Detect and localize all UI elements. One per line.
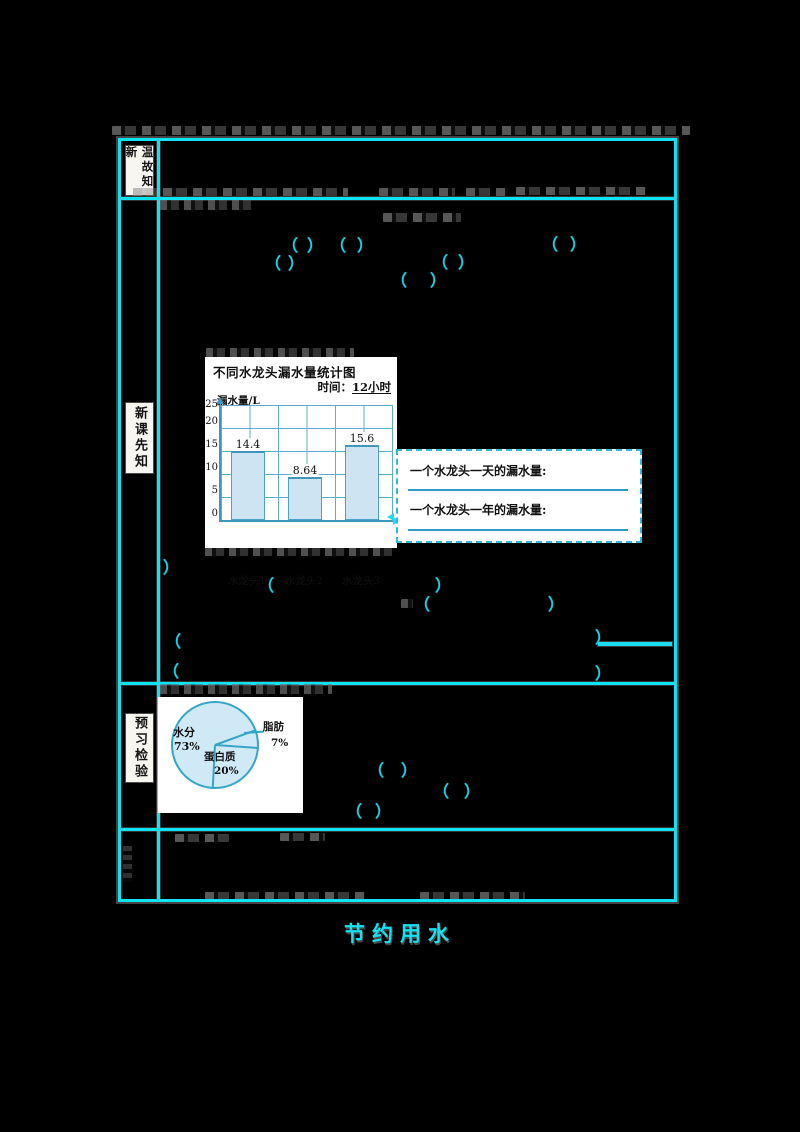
- blank-bracket-close: ）: [375, 804, 391, 820]
- worksheet-table: 温故知新 新课先知 预习检验 （ ） （ ） （ ） （ ） （ ） （ ） 不…: [118, 138, 677, 902]
- row-divider-3: [121, 828, 674, 831]
- blank-bracket-open: （: [542, 237, 558, 253]
- bar-faucet-3: 15.6: [345, 445, 379, 520]
- bar-chart-panel: 不同水龙头漏水量统计图 时间：12小时 漏水量/L 0 5 10 15 20 2…: [205, 357, 397, 548]
- redacted-text: [516, 187, 646, 195]
- blank-bracket-open: （: [414, 597, 430, 613]
- blank-bracket-close: ）: [595, 666, 611, 682]
- blank-bracket-close: ）: [458, 255, 474, 271]
- pie-pct-fat: 7%: [271, 737, 288, 749]
- bar-faucet-1: 14.4: [231, 451, 265, 520]
- blank-bracket-close: ）: [307, 238, 323, 254]
- redacted-text: [205, 892, 365, 899]
- redacted-text-row: [112, 126, 690, 135]
- blank-bracket-open: （: [258, 578, 274, 594]
- answer-blank-line: [598, 642, 672, 646]
- y-tick: 15: [205, 439, 218, 450]
- sidebar-label-preview-check: 预习检验: [126, 714, 153, 782]
- blank-bracket-open: （: [368, 763, 384, 779]
- plot-area: 0 5 10 15 20 25 14.4 8.64 15.6 水龙头1 水龙头2…: [219, 405, 393, 522]
- blank-bracket-open: （: [432, 255, 448, 271]
- note-line-year: 一个水龙头一年的漏水量:: [410, 501, 546, 518]
- blank-bracket-close: ）: [288, 256, 304, 272]
- time-value: 12小时: [352, 380, 391, 394]
- footer-slogan: 节约用水: [0, 918, 800, 948]
- sidebar-label-illegible: [123, 846, 132, 882]
- redacted-heading: [160, 200, 255, 210]
- pie-chart-panel: 水分 73% 蛋白质 20% 脂肪 7%: [158, 697, 303, 813]
- redacted-text: [466, 188, 508, 196]
- blank-bracket-close: ）: [464, 784, 480, 800]
- blank-bracket-close: ）: [430, 273, 446, 289]
- redacted-heading: [160, 684, 332, 694]
- blank-bracket-close: ）: [435, 578, 451, 594]
- blank-bracket-open: （: [163, 664, 179, 680]
- answer-note-box: 一个水龙头一天的漏水量: 一个水龙头一年的漏水量:: [396, 449, 642, 543]
- pie-label-protein: 蛋白质: [204, 749, 236, 764]
- blank-bracket-open: （: [330, 238, 346, 254]
- y-tick: 20: [205, 416, 218, 427]
- redacted-text: [383, 213, 461, 222]
- y-tick: 25: [205, 399, 218, 410]
- y-tick: 0: [205, 508, 218, 519]
- answer-blank-year: [408, 529, 628, 531]
- blank-bracket-open: （: [165, 634, 181, 650]
- blank-bracket-open: （: [282, 238, 298, 254]
- blank-bracket-close: ）: [548, 597, 564, 613]
- blank-bracket-open: （: [433, 784, 449, 800]
- pie-pct-protein: 20%: [214, 765, 239, 777]
- redacted-text: [205, 548, 393, 556]
- redacted-text: [420, 892, 525, 899]
- blank-bracket-close: ）: [163, 560, 179, 576]
- redacted-text: [401, 599, 413, 608]
- bar-value-label: 8.64: [292, 464, 319, 477]
- blank-bracket-open: （: [346, 804, 362, 820]
- bar-chart-time: 时间：12小时: [317, 379, 391, 395]
- bar-value-label: 14.4: [235, 438, 262, 451]
- blank-bracket-close: ）: [570, 237, 586, 253]
- y-tick: 10: [205, 462, 218, 473]
- worksheet-page: 温故知新 新课先知 预习检验 （ ） （ ） （ ） （ ） （ ） （ ） 不…: [0, 0, 800, 1132]
- pie-label-water: 水分: [173, 724, 195, 740]
- redacted-text: [133, 188, 348, 196]
- sidebar-label-new-lesson: 新课先知: [126, 403, 153, 473]
- y-tick: 5: [205, 485, 218, 496]
- note-line-day: 一个水龙头一天的漏水量:: [410, 462, 546, 479]
- bar-value-label: 15.6: [349, 432, 376, 445]
- blank-bracket-close: ）: [401, 763, 417, 779]
- time-label: 时间：: [317, 380, 352, 394]
- x-tick-faucet-2: 水龙头2: [274, 573, 334, 588]
- bar-faucet-2: 8.64: [288, 477, 322, 520]
- pie-label-fat: 脂肪: [263, 719, 284, 734]
- x-tick-faucet-3: 水龙头3: [331, 573, 391, 588]
- blank-bracket-close: ）: [357, 238, 373, 254]
- answer-blank-day: [408, 489, 628, 491]
- blank-bracket-open: （: [265, 256, 281, 272]
- redacted-text: [280, 833, 325, 841]
- redacted-text: [379, 188, 455, 196]
- blank-bracket-open: （: [391, 273, 407, 289]
- redacted-heading: [206, 348, 354, 357]
- pie-pct-water: 73%: [174, 740, 200, 753]
- redacted-text: [175, 834, 230, 842]
- connector-arrow-icon: [387, 513, 394, 521]
